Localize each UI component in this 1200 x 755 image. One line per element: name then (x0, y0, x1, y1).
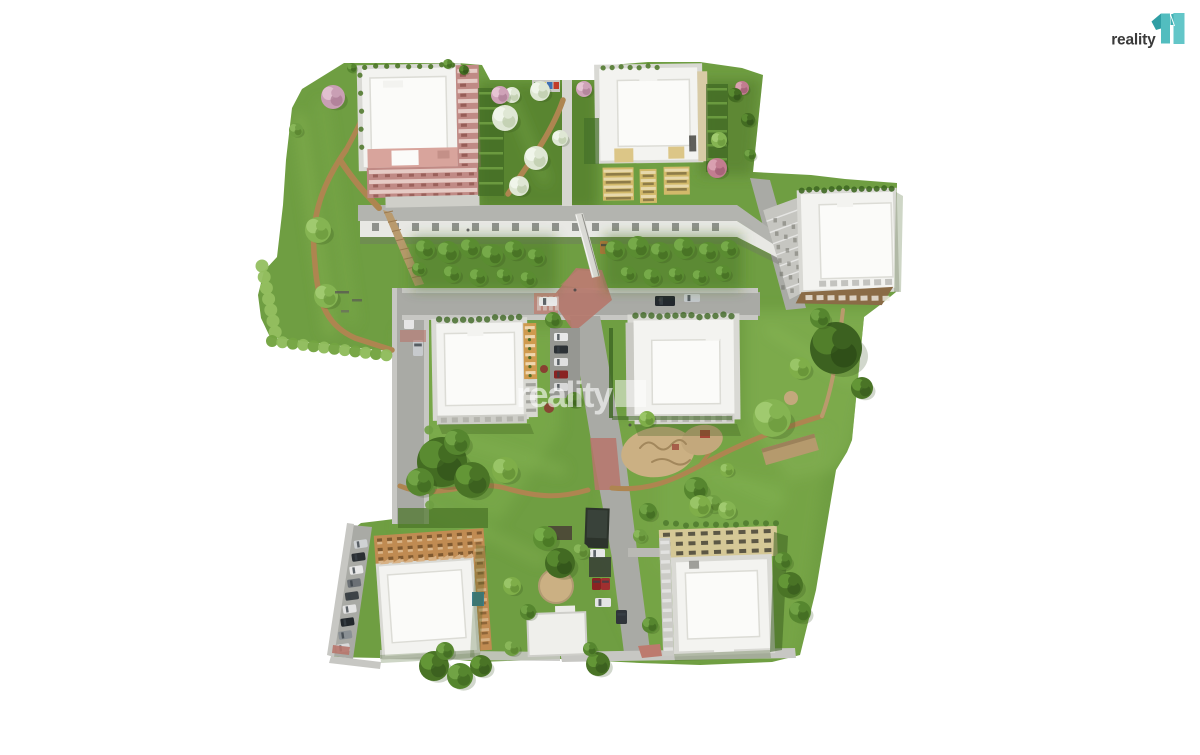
svg-text:reality: reality (516, 374, 613, 415)
svg-text:reality: reality (1111, 32, 1156, 49)
